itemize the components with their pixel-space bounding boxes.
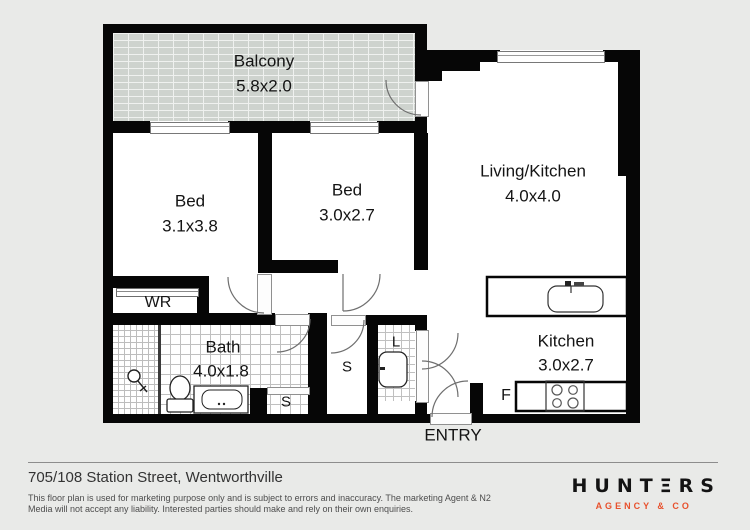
living-label: Living/Kitchen [480,163,586,180]
property-address: 705/108 Station Street, Wentworthville [28,469,283,486]
plan-interior-right [415,50,640,423]
wall [618,50,640,176]
floorplan-page: Balcony 5.8x2.0 Bed 3.1x3.8 Bed 3.0x2.7 … [0,0,750,530]
shower-screen [158,325,161,414]
wall [626,176,640,423]
agency-logo-brand: HUNTΞRS [566,475,721,497]
fridge-label: F [501,388,511,404]
wall [414,133,428,270]
wall [415,50,500,62]
bath-door-jamb [275,314,310,326]
kitchen-dims: 3.0x2.7 [538,357,594,374]
wall [367,325,378,423]
wall [258,260,338,273]
wall [103,276,207,288]
bath-dims: 4.0x1.8 [193,363,249,380]
wall [308,313,327,423]
wall [258,133,272,272]
wall [228,121,310,133]
disclaimer-text: This floor plan is used for marketing pu… [28,493,491,515]
balcony-window [150,122,230,134]
bed1-label: Bed [175,193,205,210]
laundry-doors-jamb [416,330,429,403]
entry-door-jamb [430,413,472,425]
wall [415,115,427,133]
wall [603,50,640,62]
wall [103,24,113,423]
wall [415,401,427,423]
storage-door-jamb [331,315,366,326]
footer-divider [28,462,718,463]
balcony-dims: 5.8x2.0 [236,78,292,95]
balcony-door-jamb [415,81,429,117]
agency-logo: HUNTΞRS AGENCY & CO [566,475,721,511]
balcony-window [310,122,379,134]
bed1-door-jamb [257,274,272,315]
laundry-label: L [392,335,400,350]
disclaimer-line: Media will not accept any liability. Int… [28,504,491,515]
wall [377,121,415,133]
storage-small-label: S [281,395,291,410]
living-dims: 4.0x4.0 [505,188,561,205]
wall [103,24,427,33]
bed2-dims: 3.0x2.7 [319,207,375,224]
agency-logo-tagline: AGENCY & CO [566,501,721,511]
wardrobe-label: WR [145,295,172,311]
shower-floor [113,325,158,414]
wall [250,388,267,423]
storage-hall-label: S [342,360,352,375]
kitchen-label: Kitchen [538,333,595,350]
living-window [497,51,605,63]
bath-label: Bath [206,339,241,356]
balcony-label: Balcony [234,53,294,70]
entry-label: ENTRY [424,427,481,444]
bed1-dims: 3.1x3.8 [162,218,218,235]
disclaimer-line: This floor plan is used for marketing pu… [28,493,491,504]
wall [103,313,209,325]
bed2-label: Bed [332,182,362,199]
wall [415,24,427,81]
wall [103,121,150,133]
